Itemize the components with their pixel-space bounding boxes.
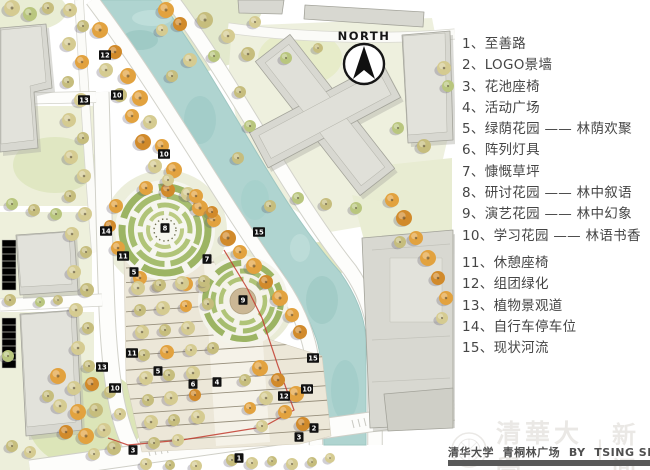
footer-bar: [448, 460, 650, 466]
legend-panel: 1、至善路 2、LOGO景墙 3、花池座椅 4、活动广场 5、绿荫花园 —— 林…: [458, 34, 648, 359]
svg-text:5: 5: [132, 269, 137, 277]
map-marker-10: 10: [111, 90, 123, 100]
map-marker-13: 13: [96, 362, 108, 372]
svg-text:13: 13: [79, 97, 89, 105]
map-marker-14: 14: [100, 226, 112, 236]
svg-text:10: 10: [302, 386, 312, 394]
map-marker-6: 6: [189, 379, 198, 389]
legend-item-1: 1、至善路: [462, 34, 648, 55]
svg-text:6: 6: [191, 381, 196, 389]
legend-list: 1、至善路 2、LOGO景墙 3、花池座椅 4、活动广场 5、绿荫花园 —— 林…: [458, 34, 648, 359]
site-plan-svg: 1213101014815711591511135641010122331 NO…: [0, 0, 455, 470]
legend-item-3: 3、花池座椅: [462, 77, 648, 98]
legend-item-10: 10、学习花园 —— 林语书香: [462, 226, 648, 247]
svg-text:4: 4: [215, 379, 220, 387]
legend-item-14: 14、自行车停车位: [462, 317, 648, 338]
map-marker-10: 10: [158, 149, 170, 159]
svg-text:10: 10: [159, 151, 169, 159]
legend-item-4: 4、活动广场: [462, 98, 648, 119]
map-marker-15: 15: [253, 227, 265, 237]
map-marker-5: 5: [130, 267, 139, 277]
svg-text:9: 9: [241, 297, 246, 305]
map-marker-8: 8: [161, 223, 170, 233]
svg-text:10: 10: [110, 385, 120, 393]
screenshot-stage: 1213101014815711591511135641010122331 NO…: [0, 0, 650, 470]
credit-line: 清华大学 青桐林广场 BY TSING SHANG: [448, 444, 650, 460]
legend-item-13: 13、植物景观道: [462, 296, 648, 317]
map-marker-12: 12: [278, 391, 290, 401]
svg-text:13: 13: [97, 364, 107, 372]
map-marker-10: 10: [109, 383, 121, 393]
map-marker-7: 7: [203, 254, 212, 264]
svg-text:5: 5: [156, 368, 161, 376]
map-marker-1: 1: [235, 453, 244, 463]
svg-text:2: 2: [312, 425, 317, 433]
legend-item-9: 9、演艺花园 —— 林中幻象: [462, 204, 648, 225]
north-label: NORTH: [338, 29, 391, 43]
legend-item-2: 2、LOGO景墙: [462, 55, 648, 76]
svg-text:12: 12: [279, 393, 289, 401]
map-marker-4: 4: [213, 377, 222, 387]
legend-item-7: 7、慷慨草坪: [462, 162, 648, 183]
svg-text:3: 3: [131, 447, 136, 455]
footer: 清華大學 | 新闻 清华大学 青桐林广场 BY TSING SHANG: [448, 412, 650, 470]
map-marker-10: 10: [301, 384, 313, 394]
svg-text:15: 15: [254, 229, 264, 237]
legend-item-5: 5、绿荫花园 —— 林荫欢聚: [462, 119, 648, 140]
map-marker-12: 12: [99, 50, 111, 60]
svg-text:10: 10: [112, 92, 122, 100]
svg-text:3: 3: [297, 434, 302, 442]
legend-item-11: 11、休憩座椅: [462, 253, 648, 274]
map-marker-13: 13: [78, 95, 90, 105]
svg-text:12: 12: [100, 52, 110, 60]
svg-text:1: 1: [237, 455, 242, 463]
map-marker-3: 3: [129, 445, 138, 455]
map-marker-2: 2: [310, 423, 319, 433]
map-marker-11: 11: [117, 251, 129, 261]
legend-item-15: 15、现状河流: [462, 338, 648, 359]
map-marker-5: 5: [154, 366, 163, 376]
map-marker-3: 3: [295, 432, 304, 442]
legend-item-12: 12、组团绿化: [462, 274, 648, 295]
svg-text:15: 15: [308, 355, 318, 363]
svg-text:7: 7: [205, 256, 210, 264]
site-plan-map: 1213101014815711591511135641010122331 NO…: [0, 0, 455, 470]
svg-text:11: 11: [127, 350, 137, 358]
svg-text:14: 14: [101, 228, 111, 236]
map-marker-11: 11: [126, 348, 138, 358]
legend-item-6: 6、阵列灯具: [462, 140, 648, 161]
map-marker-15: 15: [307, 353, 319, 363]
map-marker-9: 9: [239, 295, 248, 305]
legend-item-8: 8、研讨花园 —— 林中叙语: [462, 183, 648, 204]
svg-text:8: 8: [163, 225, 168, 233]
svg-text:11: 11: [118, 253, 128, 261]
